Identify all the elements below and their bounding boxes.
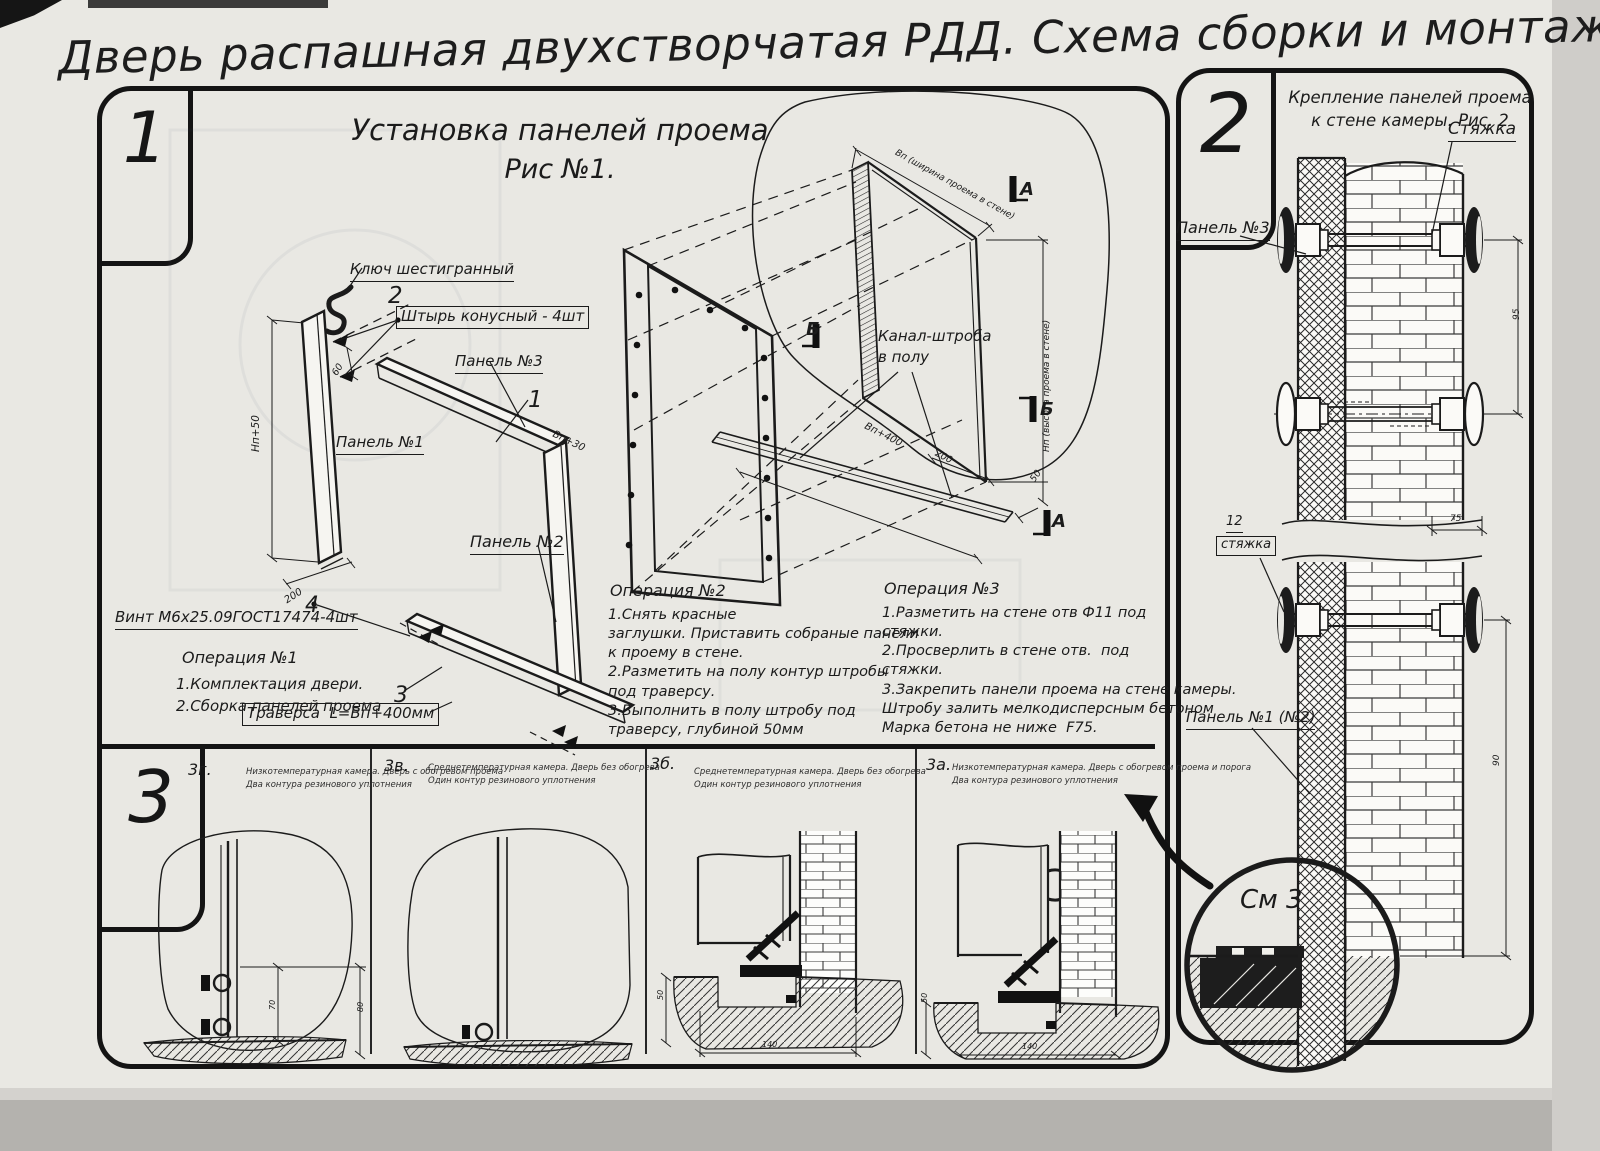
op3-text: 1.Разметить на стене отв Ф11 под стяжки.… (882, 604, 1236, 738)
label-traverse: Траверса L=Вп+400мм (242, 703, 439, 726)
subfig-g-label: 3г. (188, 760, 212, 781)
label-cone-pin: Штырь конусный - 4шт (396, 306, 589, 329)
label-panel1: Панель №1 (336, 433, 424, 455)
subfig-g-dim-inner: 70 (268, 1000, 278, 1010)
scan-corner-blotch (0, 0, 62, 28)
section-marker-a-bottom: А (1052, 510, 1066, 533)
dim-90: 90 (1492, 755, 1504, 766)
subfig-v-label: 3в. (384, 756, 409, 777)
fig1-subtitle: Рис №1. (340, 152, 780, 187)
subfig-a-label: 3а. (926, 755, 951, 776)
label-see-detail-3: См 3 (1240, 884, 1303, 918)
callout-1: 1 (528, 386, 543, 416)
section-marker-b-left: Б (806, 318, 820, 341)
op1-title: Операция №1 (182, 648, 298, 669)
section-marker-b-right: Б (1040, 398, 1054, 421)
fig1-title: Установка панелей проема (340, 112, 780, 150)
subfig-g-dim-outer: 80 (356, 1002, 366, 1012)
label-screw: Винт М6х25.09ГОСТ17474-4шт (115, 608, 358, 630)
subfig-a-caption: Низкотемпературная камера. Дверь с обогр… (952, 762, 1251, 788)
label-panel3: Панель №3 (455, 352, 543, 374)
label-tie-top: Стяжка (1448, 118, 1516, 142)
label-tie-mid: стяжка (1216, 536, 1276, 556)
label-panel12: Панель №1 (№2) (1186, 708, 1315, 730)
subfig-b-dim-depth: 50 (656, 990, 666, 1000)
op2-title: Операция №2 (610, 581, 726, 602)
subfig-b-dim-width: 140 (762, 1040, 777, 1050)
label-panel2: Панель №2 (470, 532, 564, 555)
subfig-a-dim-width: 140 (1022, 1042, 1037, 1052)
dim-np50: Нп+50 (250, 415, 264, 452)
subfig-b-caption: Среднетемпературная камера. Дверь без об… (694, 766, 926, 792)
subfig-a-dim-depth: 50 (920, 993, 930, 1003)
subfig-b-label: 3б. (650, 754, 675, 775)
op3-title: Операция №3 (884, 579, 1000, 600)
subfig-v-caption: Среднетемпературная камера. Дверь без об… (428, 762, 660, 788)
scan-right-strip (1552, 0, 1600, 1151)
scanned-drawing-sheet: Дверь распашная двухстворчатая РДД. Схем… (0, 0, 1600, 1151)
fig3-drawing (100, 745, 1165, 1062)
scan-top-bar (88, 0, 328, 8)
dim-opening-height: Нп (высота проема в стене) (1042, 320, 1054, 452)
dim-95: 95 (1512, 309, 1524, 320)
label-floor-channel: Канал-штроба в полу (878, 326, 991, 368)
label-fig2-panel3: Панель №3 (1176, 218, 1270, 241)
label-hex-key: Ключ шестигранный (350, 260, 514, 282)
dim-75: 75 (1450, 514, 1461, 526)
op2-text: 1.Снять красные заглушки. Приставить соб… (608, 606, 919, 740)
section-marker-a-top: А (1020, 178, 1034, 201)
label-tie-number: 12 (1226, 514, 1243, 533)
